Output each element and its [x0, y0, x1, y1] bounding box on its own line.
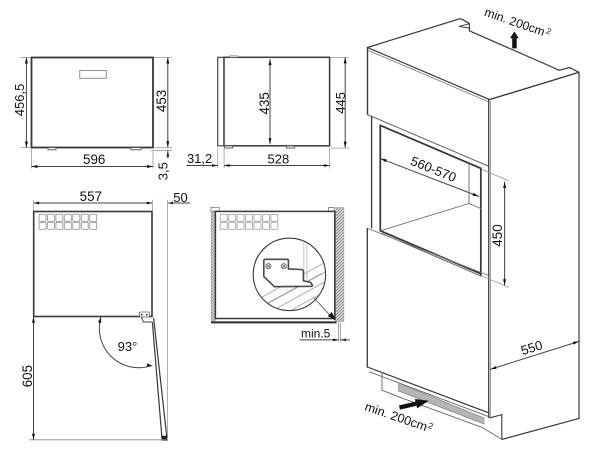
svg-text:50: 50	[173, 190, 187, 205]
svg-text:453: 453	[154, 90, 169, 112]
svg-text:31,2: 31,2	[187, 151, 212, 166]
svg-text:456,5: 456,5	[12, 84, 27, 117]
svg-text:445: 445	[333, 92, 348, 114]
svg-text:605: 605	[20, 365, 35, 387]
svg-text:557: 557	[80, 189, 102, 204]
svg-text:450: 450	[490, 224, 505, 246]
svg-text:596: 596	[83, 152, 105, 167]
svg-text:435: 435	[257, 92, 272, 114]
svg-text:3,5: 3,5	[155, 162, 170, 180]
svg-text:528: 528	[268, 152, 290, 167]
svg-text:min.5: min.5	[301, 327, 331, 341]
svg-text:93°: 93°	[118, 339, 138, 354]
